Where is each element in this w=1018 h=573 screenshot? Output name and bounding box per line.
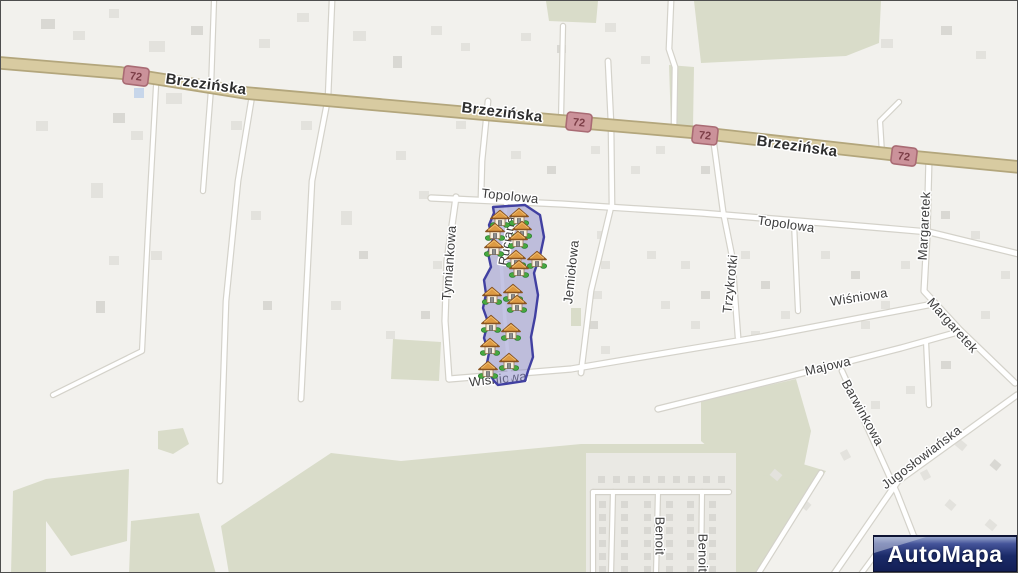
building	[644, 540, 651, 547]
building	[981, 311, 990, 319]
route-badge-72: 72	[890, 146, 917, 167]
building	[166, 93, 182, 104]
building	[96, 301, 105, 313]
building	[599, 540, 606, 547]
green-area	[11, 479, 46, 573]
building	[621, 527, 628, 534]
building	[761, 281, 770, 289]
building	[359, 251, 368, 259]
building	[599, 553, 606, 560]
building	[901, 261, 910, 269]
building	[396, 151, 406, 160]
building	[113, 113, 125, 123]
building	[456, 121, 466, 129]
building	[861, 321, 870, 329]
building	[644, 527, 651, 534]
green-area	[546, 1, 598, 23]
building	[781, 311, 790, 319]
road-side-road-n2	[561, 26, 563, 119]
road-benoit	[611, 492, 613, 573]
green-area	[391, 339, 441, 381]
building	[621, 514, 628, 521]
building	[661, 301, 670, 309]
building	[599, 527, 606, 534]
building	[461, 43, 470, 51]
building	[131, 131, 143, 140]
building	[687, 514, 694, 521]
building	[644, 553, 651, 560]
building	[598, 476, 605, 483]
building	[149, 41, 165, 52]
building	[593, 291, 602, 299]
building	[851, 271, 860, 279]
svg-text:72: 72	[897, 150, 911, 163]
svg-text:72: 72	[572, 116, 585, 129]
building	[231, 121, 242, 130]
building	[621, 553, 628, 560]
route-badge-72: 72	[692, 125, 719, 146]
building	[36, 121, 48, 131]
building	[687, 566, 694, 573]
building	[718, 476, 725, 483]
building	[701, 166, 710, 174]
building	[259, 39, 270, 48]
building	[109, 9, 119, 18]
building	[976, 51, 986, 59]
route-badge-72: 72	[566, 112, 593, 133]
building	[511, 151, 521, 159]
green-area	[571, 308, 581, 326]
building	[73, 31, 85, 40]
building	[687, 501, 694, 508]
building	[641, 56, 650, 64]
building	[297, 13, 309, 22]
building	[688, 476, 695, 483]
building	[191, 26, 203, 35]
svg-text:72: 72	[129, 70, 143, 83]
building	[621, 501, 628, 508]
building	[687, 540, 694, 547]
building	[703, 476, 710, 483]
building	[656, 146, 665, 154]
building	[628, 476, 635, 483]
building	[601, 261, 610, 269]
building	[1001, 271, 1010, 279]
building	[709, 514, 716, 521]
street-label-benoit: Benoit	[696, 534, 711, 573]
building	[109, 256, 119, 265]
building	[647, 251, 656, 259]
building	[353, 31, 366, 41]
building	[613, 476, 620, 483]
building	[644, 501, 651, 508]
building	[421, 311, 430, 319]
building	[547, 166, 556, 174]
map-viewport[interactable]: WiśniowaRucianaBrzezińskaBrzezińskaBrzez…	[0, 0, 1018, 573]
building	[331, 301, 341, 310]
building	[709, 501, 716, 508]
building	[644, 566, 651, 573]
building	[701, 291, 710, 299]
building	[673, 476, 680, 483]
building	[871, 401, 880, 409]
building	[521, 33, 531, 41]
building	[393, 56, 402, 68]
building	[621, 540, 628, 547]
building	[386, 331, 395, 339]
building	[881, 301, 890, 309]
route-badge-72: 72	[122, 66, 149, 87]
map-canvas[interactable]: WiśniowaRucianaBrzezińskaBrzezińskaBrzez…	[1, 1, 1018, 573]
building	[941, 211, 950, 219]
building	[666, 566, 673, 573]
building	[687, 553, 694, 560]
building	[681, 261, 690, 269]
building	[687, 527, 694, 534]
building	[263, 301, 272, 310]
svg-text:72: 72	[698, 129, 711, 142]
building	[599, 514, 606, 521]
building	[301, 121, 312, 130]
building	[621, 566, 628, 573]
building	[658, 476, 665, 483]
building	[41, 19, 55, 29]
building	[631, 166, 640, 174]
building	[821, 251, 830, 259]
building	[431, 26, 442, 35]
building	[971, 231, 980, 239]
building	[605, 23, 616, 32]
automapa-logo-text: AutoMapa	[887, 541, 1002, 568]
building	[906, 386, 915, 394]
building-blue	[134, 88, 144, 98]
automapa-logo: AutoMapa	[874, 536, 1016, 571]
building	[599, 566, 606, 573]
building	[591, 146, 600, 154]
building	[599, 501, 606, 508]
building	[741, 251, 750, 259]
building	[643, 476, 650, 483]
building	[941, 361, 951, 369]
building	[941, 26, 952, 35]
building	[601, 346, 610, 354]
building	[666, 501, 673, 508]
street-label-benoit: Benoit	[653, 517, 668, 556]
building	[691, 321, 700, 329]
building	[151, 251, 162, 260]
building	[91, 183, 103, 198]
building	[341, 211, 352, 225]
building	[251, 211, 261, 220]
building	[881, 39, 893, 48]
building	[644, 514, 651, 521]
